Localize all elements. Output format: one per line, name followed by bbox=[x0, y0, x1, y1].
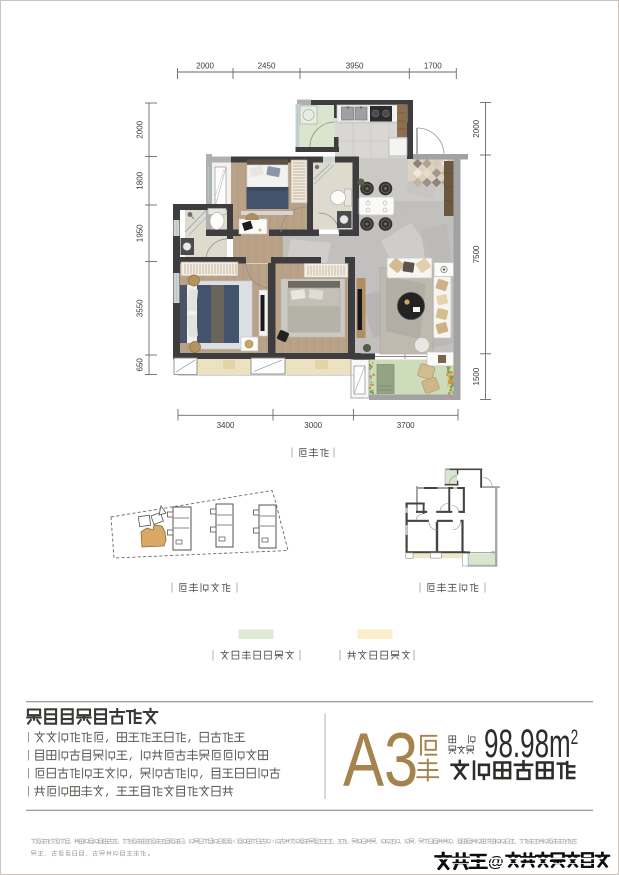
svg-text:2450: 2450 bbox=[258, 62, 276, 71]
svg-text:1700: 1700 bbox=[424, 62, 442, 71]
svg-text:3950: 3950 bbox=[346, 62, 364, 71]
svg-text:3700: 3700 bbox=[397, 421, 415, 430]
svg-text:3550: 3550 bbox=[136, 299, 145, 317]
svg-text:1500: 1500 bbox=[472, 367, 481, 385]
svg-text:7500: 7500 bbox=[472, 245, 481, 263]
svg-text:3000: 3000 bbox=[304, 421, 322, 430]
svg-text:650: 650 bbox=[136, 358, 145, 372]
svg-text:2000: 2000 bbox=[136, 120, 145, 138]
svg-text:A3: A3 bbox=[343, 717, 418, 803]
svg-text:98.98m2: 98.98m2 bbox=[484, 721, 578, 766]
svg-text:@: @ bbox=[488, 854, 504, 871]
svg-text:1950: 1950 bbox=[136, 224, 145, 242]
svg-text:2000: 2000 bbox=[472, 119, 481, 137]
svg-text:3400: 3400 bbox=[217, 421, 235, 430]
svg-text:2000: 2000 bbox=[196, 62, 214, 71]
svg-text:1800: 1800 bbox=[136, 171, 145, 189]
